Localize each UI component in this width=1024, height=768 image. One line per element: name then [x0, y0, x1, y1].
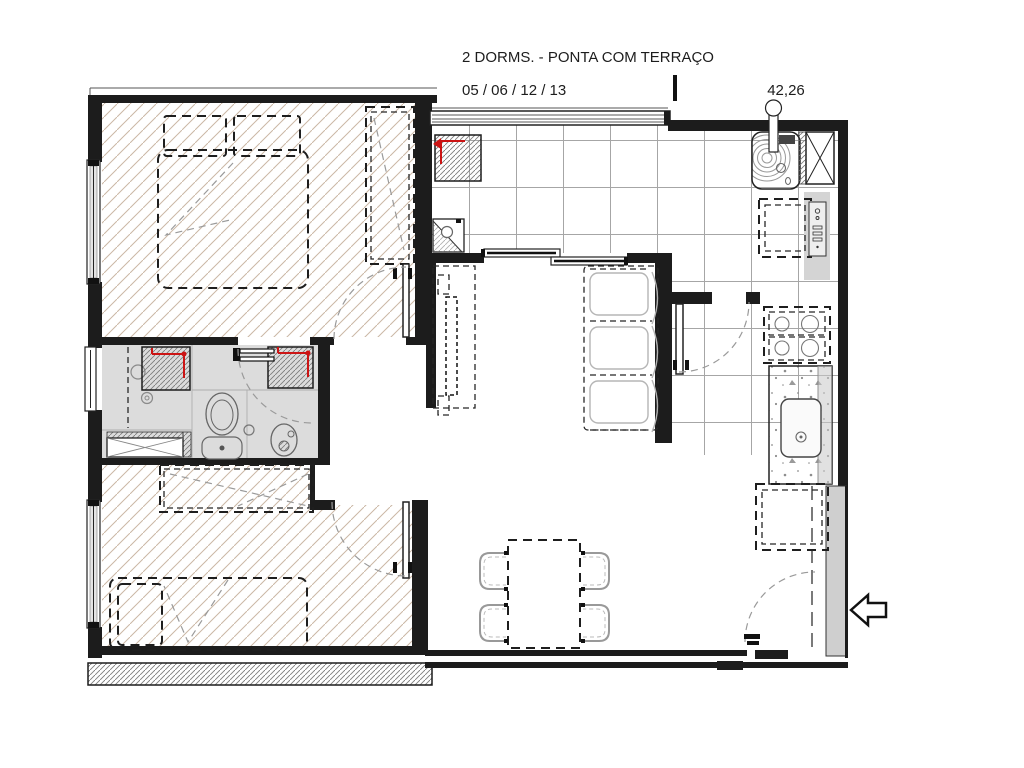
bidet: [271, 424, 297, 456]
entrance-wall-strip: [826, 486, 846, 656]
unit-numbers-label: 05 / 06 / 12 / 13: [462, 82, 566, 99]
plan-labels: 2 DORMS. - PONTA COM TERRAÇO 05 / 06 / 1…: [462, 49, 805, 101]
duct-shaft: [268, 347, 313, 388]
bedroom1-floor: [102, 103, 415, 337]
oven-panel: [809, 202, 826, 256]
toilet: [206, 393, 238, 435]
sofa: [584, 266, 658, 432]
window-bedroom1: [87, 160, 100, 284]
plan-title: 2 DORMS. - PONTA COM TERRAÇO: [462, 49, 714, 66]
dining-table: [508, 540, 580, 648]
bedroom2-floor: [102, 465, 412, 648]
dining-chair: [480, 551, 508, 591]
window-bedroom2: [87, 500, 100, 628]
tv-unit: [433, 266, 475, 415]
floor-plan-svg: 2 DORMS. - PONTA COM TERRAÇO 05 / 06 / 1…: [0, 0, 1024, 768]
scale-tick: [673, 75, 677, 101]
dining-set: [480, 540, 609, 648]
dining-chair: [581, 603, 609, 643]
water-heater: [799, 132, 834, 184]
vent-shaft-kitchen: [433, 135, 481, 181]
entrance-door: [744, 572, 815, 645]
washbasin-drain: [220, 446, 225, 451]
bath-cabinet: [107, 432, 191, 457]
entrance-arrow-icon: [851, 595, 886, 625]
kitchen-window-band: [430, 111, 670, 125]
faucet-knob: [766, 100, 782, 116]
floor-plan-page: 2 DORMS. - PONTA COM TERRAÇO 05 / 06 / 1…: [0, 0, 1024, 768]
laundry-counter: [769, 366, 832, 484]
dining-chair: [480, 603, 508, 643]
dining-chair: [581, 551, 609, 591]
bottom-wall-band: [88, 663, 432, 685]
entrance: [744, 484, 886, 652]
entrance-cabinet: [756, 484, 828, 550]
window-bathroom: [85, 347, 96, 411]
windows: [85, 160, 100, 628]
living-dining: [433, 249, 658, 648]
duct-shaft: [142, 347, 190, 390]
area-label: 42,26: [767, 82, 805, 99]
corner-cabinet: [433, 219, 464, 252]
